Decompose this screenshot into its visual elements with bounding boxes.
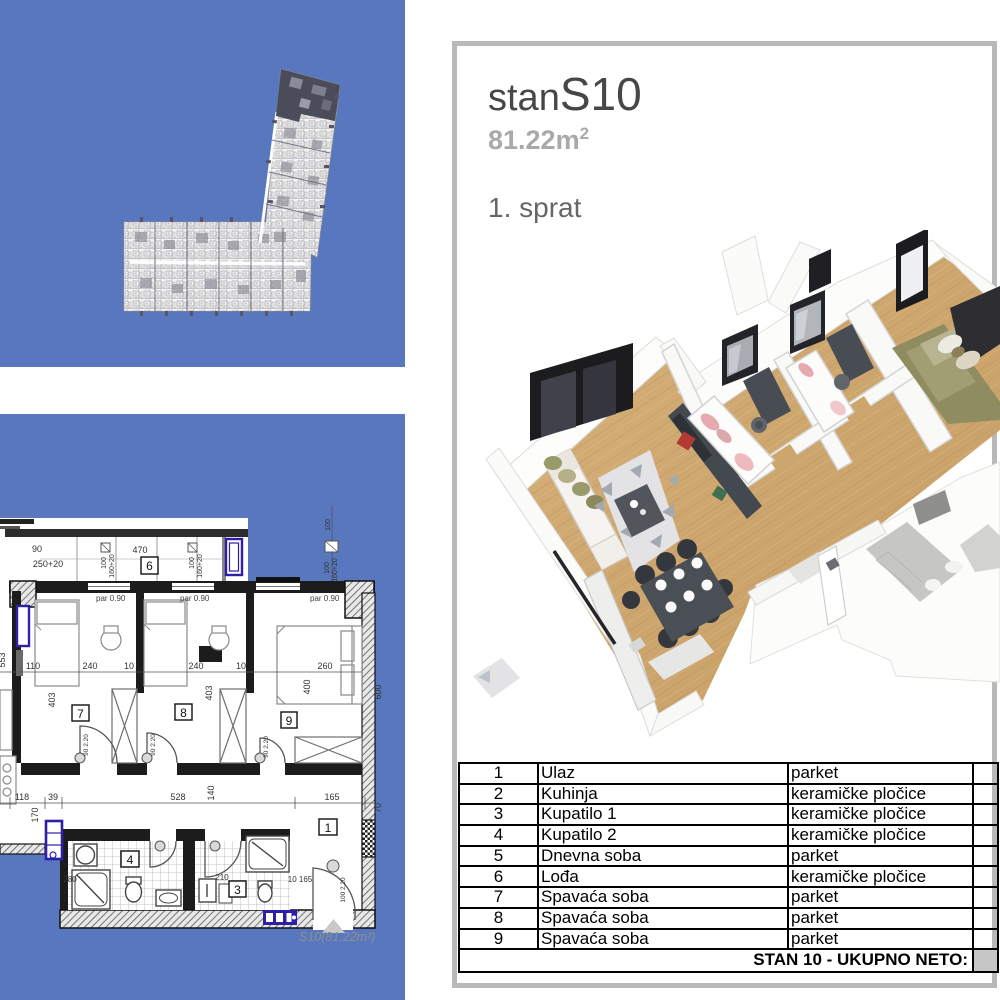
svg-text:240: 240 [82,661,97,671]
svg-text:4: 4 [127,853,134,867]
svg-text:528: 528 [170,792,185,802]
svg-text:39: 39 [48,792,58,802]
svg-text:7: 7 [77,707,84,721]
svg-text:280: 280 [63,875,77,884]
svg-text:100 2.20: 100 2.20 [340,877,347,903]
svg-text:90 2.20: 90 2.20 [83,734,90,756]
svg-text:110: 110 [26,661,40,671]
svg-text:90: 90 [32,544,42,554]
svg-text:10: 10 [236,661,246,671]
svg-text:S10(81.22m²): S10(81.22m²) [299,930,375,944]
svg-text:470: 470 [132,545,147,555]
svg-text:par 0.90: par 0.90 [310,594,340,603]
svg-text:100: 100 [189,557,196,569]
svg-text:6: 6 [146,559,153,573]
svg-text:1: 1 [325,821,332,835]
svg-text:140: 140 [206,785,216,800]
svg-text:100: 100 [101,557,108,569]
svg-text:9: 9 [286,714,293,728]
svg-text:553: 553 [0,652,7,667]
svg-text:210: 210 [215,873,229,882]
svg-text:160+20: 160+20 [332,558,339,582]
svg-text:118: 118 [15,792,29,802]
svg-text:10: 10 [124,661,134,671]
svg-text:250+20: 250+20 [33,559,63,569]
svg-text:100: 100 [325,519,332,531]
svg-text:403: 403 [204,685,214,700]
svg-text:90 2.20: 90 2.20 [263,736,270,758]
svg-text:100: 100 [324,562,331,574]
svg-text:70: 70 [373,803,383,813]
svg-text:3: 3 [234,883,241,897]
svg-text:260: 260 [317,661,332,671]
svg-text:600: 600 [373,684,383,699]
svg-text:160+20: 160+20 [109,554,116,578]
svg-text:8: 8 [180,706,187,720]
svg-text:240: 240 [188,661,203,671]
svg-text:par 0.90: par 0.90 [96,594,126,603]
svg-text:165: 165 [324,792,339,802]
svg-text:403: 403 [47,692,57,707]
svg-text:90 2.20: 90 2.20 [150,734,157,756]
svg-text:160+20: 160+20 [197,554,204,578]
svg-text:10 165: 10 165 [288,875,313,884]
svg-text:400: 400 [302,679,312,694]
svg-text:170: 170 [30,807,40,822]
svg-text:par 0.90: par 0.90 [180,594,210,603]
